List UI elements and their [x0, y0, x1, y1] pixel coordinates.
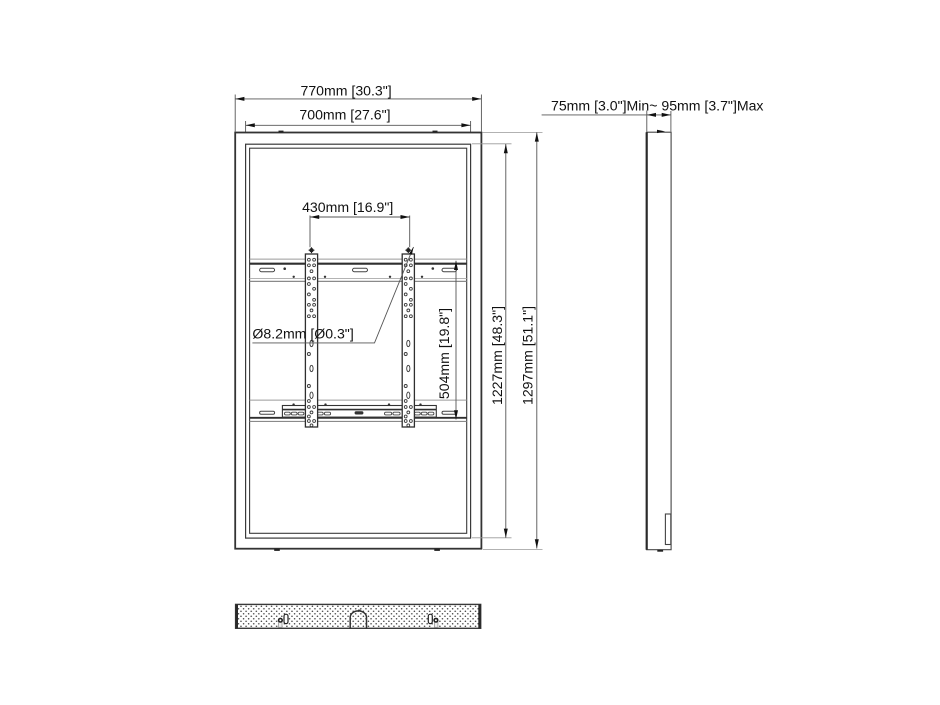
svg-text:700mm [27.6"]: 700mm [27.6"]	[299, 107, 390, 123]
svg-text:430mm [16.9"]: 430mm [16.9"]	[302, 199, 393, 215]
svg-text:75mm [3.0"]Min~ 95mm [3.7"]Ma: 75mm [3.0"]Min~ 95mm [3.7"]Max	[551, 98, 763, 114]
svg-text:770mm [30.3"]: 770mm [30.3"]	[301, 83, 392, 99]
svg-text:1297mm [51.1"]: 1297mm [51.1"]	[520, 306, 536, 405]
svg-text:504mm [19.8"]: 504mm [19.8"]	[436, 308, 452, 399]
svg-text:1227mm [48.3"]: 1227mm [48.3"]	[489, 306, 505, 405]
svg-text:Ø8.2mm [Ø0.3"]: Ø8.2mm [Ø0.3"]	[252, 326, 353, 342]
